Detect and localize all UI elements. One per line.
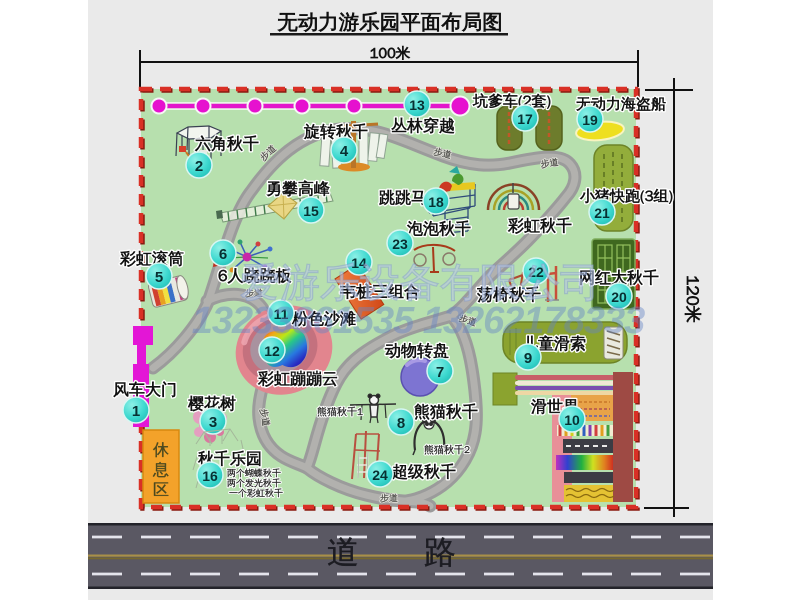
svg-text:16: 16 <box>202 468 218 484</box>
svg-text:5: 5 <box>155 269 163 286</box>
svg-text:18: 18 <box>428 194 444 210</box>
svg-text:23: 23 <box>392 236 408 252</box>
svg-text:19: 19 <box>582 112 598 128</box>
svg-text:9: 9 <box>524 350 532 367</box>
svg-text:2: 2 <box>195 158 203 175</box>
svg-text:17: 17 <box>517 111 533 127</box>
svg-text:6: 6 <box>219 246 227 263</box>
svg-text:3: 3 <box>209 414 217 431</box>
svg-text:21: 21 <box>594 205 610 221</box>
svg-text:12: 12 <box>264 343 280 359</box>
svg-text:4: 4 <box>340 143 349 160</box>
svg-text:10: 10 <box>564 412 580 428</box>
svg-text:13: 13 <box>409 97 425 113</box>
svg-text:7: 7 <box>436 364 444 381</box>
svg-text:15: 15 <box>303 203 319 219</box>
svg-text:8: 8 <box>397 415 405 432</box>
svg-text:24: 24 <box>372 467 388 483</box>
svg-text:13233861535 13262178333: 13233861535 13262178333 <box>192 300 645 342</box>
svg-text:1: 1 <box>132 403 140 420</box>
